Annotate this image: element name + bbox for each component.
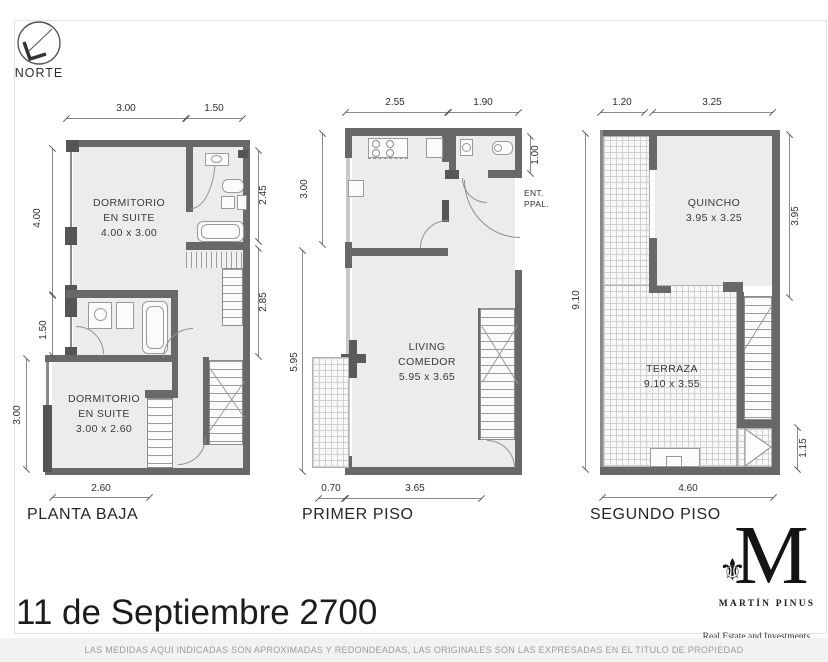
stairs: [744, 296, 772, 420]
wall-segment: [66, 290, 178, 298]
wall-segment: [600, 130, 780, 136]
room-label-living: LIVING COMEDOR 5.95 x 3.65: [363, 340, 491, 386]
dimension-line: [52, 497, 150, 498]
washer-door: [94, 308, 107, 321]
wall-segment: [442, 136, 449, 162]
dimension-label: 5.95: [289, 342, 301, 382]
dimension-label: 2.60: [81, 483, 121, 495]
closet-hatch: [186, 252, 243, 268]
bathtub-inner: [201, 224, 240, 239]
room-size: 3.95 x 3.25: [658, 211, 770, 226]
wall-segment: [515, 270, 522, 475]
wall-segment: [345, 128, 522, 136]
stove-burner: [386, 140, 394, 148]
dimension-line: [652, 112, 773, 113]
entrance-label: ENT. PPAL.: [524, 188, 549, 210]
room-name: DORMITORIO: [68, 196, 190, 211]
balcony-hatch: [312, 357, 349, 468]
dimension-label: 4.00: [32, 198, 44, 238]
wall-segment: [66, 355, 178, 362]
dimension-label: 9.10: [571, 280, 583, 320]
wall-segment: [600, 130, 603, 470]
dimension-label: 1.15: [798, 428, 810, 468]
dimension-label: 2.55: [375, 97, 415, 109]
wall-segment: [243, 140, 250, 475]
room-name: QUINCHO: [658, 196, 770, 211]
wall-segment: [66, 140, 250, 147]
dimension-line: [318, 498, 345, 499]
dimension-line: [600, 112, 645, 113]
entrance-line: PPAL.: [524, 199, 549, 210]
dimension-label: 0.70: [311, 483, 351, 495]
stove-burner: [372, 149, 380, 157]
room-name: DORMITORIO: [45, 392, 163, 407]
wall-segment: [445, 170, 459, 179]
stairs: [222, 268, 243, 326]
dimension-label: 3.00: [299, 169, 311, 209]
wall-segment: [723, 282, 743, 292]
counter-edge: [368, 158, 408, 159]
dimension-label: 2.85: [258, 282, 270, 322]
disclaimer-text: LAS MEDIDAS AQUI INDICADAS SON APROXIMAD…: [85, 645, 744, 655]
fridge: [348, 180, 364, 197]
bathtub-inner: [146, 306, 164, 349]
room-name: COMEDOR: [363, 355, 491, 370]
logo-monogram: M: [734, 514, 809, 598]
wall-segment: [600, 467, 780, 475]
plan-title-primer-piso: PRIMER PISO: [302, 505, 414, 524]
counter: [426, 138, 443, 158]
room-size: 9.10 x 3.55: [616, 377, 728, 392]
plan-title-planta-baja: PLANTA BAJA: [27, 505, 138, 524]
room-name: LIVING: [363, 340, 491, 355]
wall-segment: [488, 170, 522, 178]
dimension-line: [448, 112, 519, 113]
room-label-terraza: TERRAZA 9.10 x 3.55: [616, 362, 728, 392]
dimension-label: 2.45: [258, 175, 270, 215]
dimension-line: [585, 133, 586, 470]
wall-segment: [737, 420, 775, 428]
dimension-label: 3.00: [12, 395, 24, 435]
dimension-label: 3.95: [790, 196, 802, 236]
dimension-label: 4.60: [668, 483, 708, 495]
bidet: [221, 196, 235, 209]
room-label-quincho: QUINCHO 3.95 x 3.25: [658, 196, 770, 226]
sink-basin: [462, 143, 471, 152]
dimension-label: 3.00: [106, 103, 146, 115]
room-size: 3.00 x 2.60: [45, 422, 163, 437]
room-size: 4.00 x 3.00: [68, 226, 190, 241]
sink-basin: [211, 155, 222, 163]
dimension-line: [602, 497, 774, 498]
wall-segment: [649, 286, 671, 293]
toilet: [222, 179, 244, 193]
dimension-line: [52, 295, 53, 356]
wall-segment: [649, 136, 657, 170]
wall-segment: [45, 468, 250, 475]
dimension-line: [186, 118, 243, 119]
toilet-tank: [494, 144, 502, 152]
terrace-hatch: [603, 136, 650, 286]
wall-segment: [186, 242, 250, 250]
room-name: TERRAZA: [616, 362, 728, 377]
window-line: [70, 143, 72, 362]
sink: [116, 302, 134, 329]
wall-segment: [442, 200, 449, 222]
dimension-line: [322, 133, 323, 245]
dimension-label: 1.90: [463, 97, 503, 109]
dimension-label: 3.25: [692, 97, 732, 109]
dimension-label: 1.20: [602, 97, 642, 109]
wall-segment: [345, 248, 448, 256]
dimension-line: [345, 112, 448, 113]
north-label: NORTE: [6, 66, 72, 80]
logo-name: MARTÍN PINUS: [712, 599, 822, 609]
room-size: 5.95 x 3.65: [363, 370, 491, 385]
room-name: EN SUITE: [45, 407, 163, 422]
dimension-line: [52, 148, 53, 295]
dimension-line: [345, 498, 482, 499]
dimension-label: 1.00: [530, 135, 542, 175]
floor-plan-sheet: NORTE: [0, 0, 828, 662]
window-line: [346, 158, 350, 242]
wall-segment: [737, 292, 744, 428]
dimension-label: 3.65: [395, 483, 435, 495]
disclaimer-bar: LAS MEDIDAS AQUI INDICADAS SON APROXIMAD…: [0, 638, 828, 662]
plan-title-segundo-piso: SEGUNDO PISO: [590, 505, 721, 524]
page-title: 11 de Septiembre 2700: [16, 594, 377, 633]
dimension-line: [26, 358, 27, 470]
stair-arrow: [744, 428, 773, 468]
room-name: EN SUITE: [68, 211, 190, 226]
dimension-line: [302, 250, 303, 472]
wall-segment: [649, 238, 657, 293]
dimension-label: 1.50: [194, 103, 234, 115]
wall-segment: [345, 467, 522, 475]
wall-segment: [66, 140, 79, 152]
bidet: [237, 195, 247, 210]
entrance-line: ENT.: [524, 188, 549, 199]
stove-burner: [372, 140, 380, 148]
dimension-line: [66, 118, 186, 119]
north-compass-icon: [12, 18, 66, 70]
room-label-dormitorio-2: DORMITORIO EN SUITE 3.00 x 2.60: [45, 392, 163, 438]
room-label-dormitorio-1: DORMITORIO EN SUITE 4.00 x 3.00: [68, 196, 190, 242]
stove-burner: [386, 149, 394, 157]
dimension-label: 1.50: [38, 310, 50, 350]
wall-segment: [345, 128, 352, 158]
grill-inner: [666, 456, 682, 467]
wall-segment: [238, 150, 248, 158]
